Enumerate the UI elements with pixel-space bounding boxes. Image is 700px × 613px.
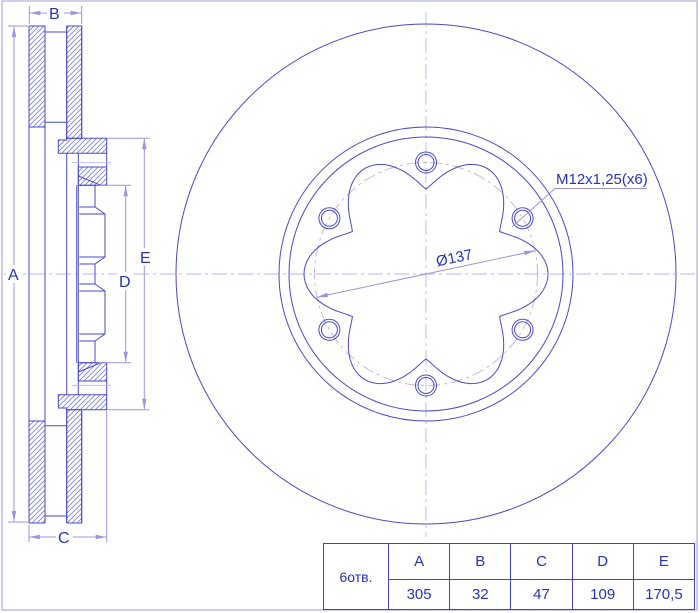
dim-label-d: D xyxy=(119,274,131,291)
dim-label-b: B xyxy=(49,6,60,23)
thread-callout-label: M12x1,25(x6) xyxy=(556,171,648,188)
spec-table-header-d: D xyxy=(572,544,633,579)
outboard-plate-section-bottom xyxy=(29,421,45,523)
hat-flange-section-bottom xyxy=(58,395,106,410)
side-section-view xyxy=(4,26,696,523)
inboard-plate-section-bottom xyxy=(67,410,82,523)
bolt-hole xyxy=(319,319,340,340)
spec-table-row-label: 6отв. xyxy=(324,544,388,609)
spec-table-value-a: 305 xyxy=(388,579,449,609)
dim-label-a: A xyxy=(8,267,19,284)
bolt-boss-section-bottom xyxy=(78,363,106,381)
spec-table-header-b: B xyxy=(449,544,510,579)
spec-table: 6отв. A B C D E 305 32 47 109 170,5 xyxy=(323,543,695,610)
hat-flange-section-top xyxy=(58,138,106,153)
bolt-boss-section-top xyxy=(78,167,106,185)
brake-disc-technical-drawing: A B C D E xyxy=(0,0,700,613)
spec-table-header-c: C xyxy=(510,544,571,579)
bolt-hole xyxy=(321,322,337,338)
bolt-hole xyxy=(512,319,533,340)
spec-table-header-a: A xyxy=(388,544,449,579)
spec-table-header-e: E xyxy=(633,544,694,579)
outboard-plate-section-top xyxy=(29,26,45,127)
spec-table-value-d: 109 xyxy=(572,579,633,609)
dim-label-c: C xyxy=(58,530,70,547)
spec-table-value-e: 170,5 xyxy=(633,579,694,609)
dim-label-e: E xyxy=(140,250,151,267)
bolt-circle-diameter-label: Ø137 xyxy=(435,246,474,270)
spec-table-value-b: 32 xyxy=(449,579,510,609)
drawing-canvas: A B C D E xyxy=(0,0,700,613)
spec-table-value-c: 47 xyxy=(510,579,571,609)
front-view: Ø137 M12x1,25(x6) xyxy=(176,12,676,537)
thread-callout: M12x1,25(x6) xyxy=(512,171,648,227)
bolt-hole xyxy=(515,322,531,338)
inboard-plate-section-top xyxy=(67,26,82,138)
